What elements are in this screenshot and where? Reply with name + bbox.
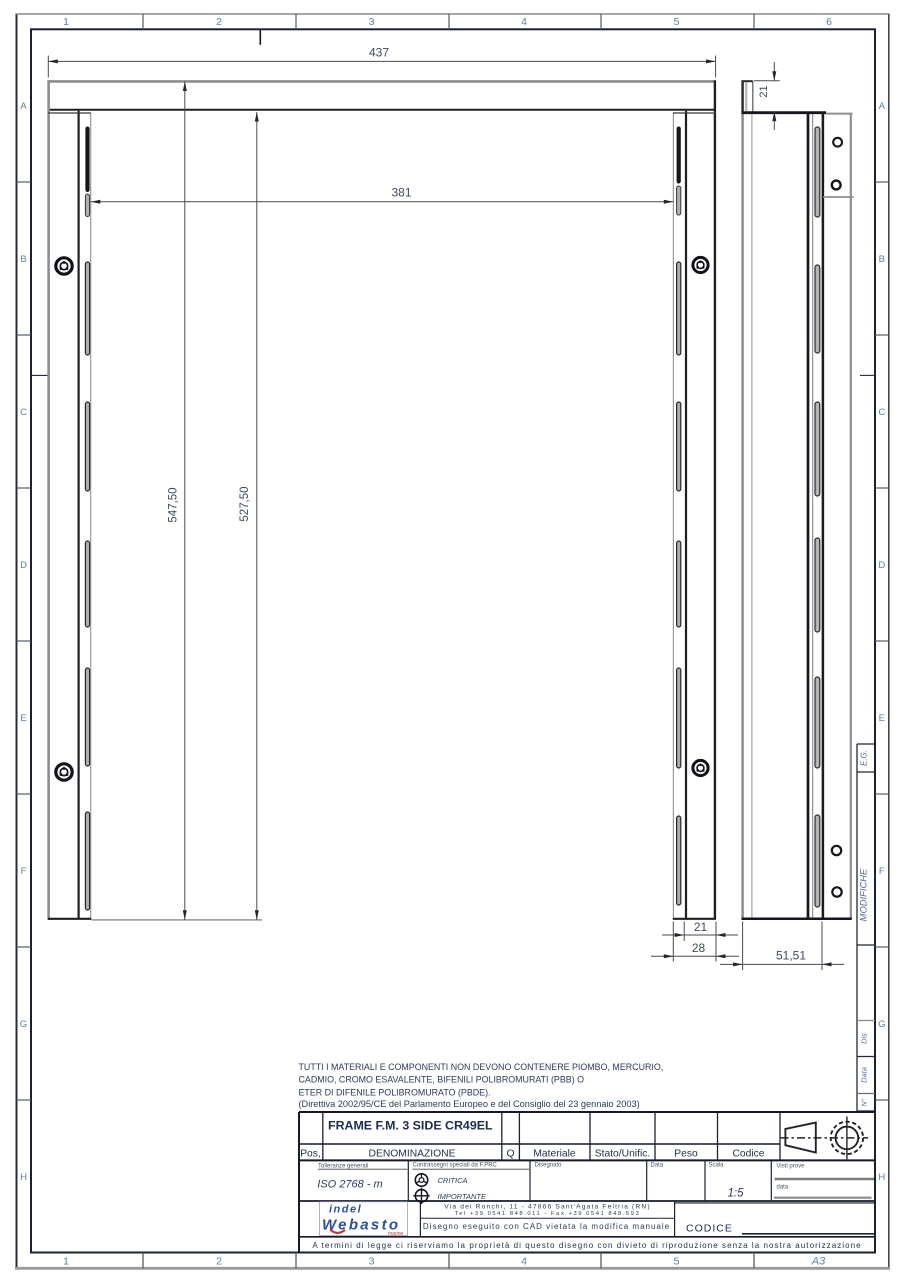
svg-text:indel: indel (329, 1204, 362, 1216)
svg-text:E: E (879, 713, 885, 724)
svg-text:4: 4 (521, 1256, 527, 1268)
svg-text:CODICE: CODICE (686, 1223, 733, 1235)
svg-text:5: 5 (674, 16, 680, 28)
svg-text:547,50: 547,50 (168, 487, 180, 522)
svg-text:F: F (879, 866, 885, 877)
svg-text:Disegno eseguito con CAD vieta: Disegno eseguito con CAD vietata la modi… (423, 1222, 670, 1231)
svg-text:E: E (20, 713, 26, 724)
svg-text:A3: A3 (811, 1256, 826, 1268)
svg-text:Peso: Peso (674, 1149, 698, 1160)
svg-text:CADMIO, CROMO ESAVALENTE, BIFE: CADMIO, CROMO ESAVALENTE, BIFENILI POLIB… (299, 1075, 585, 1085)
svg-text:ISO 2768 - m: ISO 2768 - m (317, 1179, 382, 1191)
svg-text:A: A (879, 101, 886, 112)
svg-text:Visti prove: Visti prove (777, 1164, 806, 1170)
svg-text:IMPORTANTE: IMPORTANTE (438, 1192, 487, 1201)
svg-text:marine: marine (388, 1231, 404, 1237)
svg-text:Data: Data (860, 1067, 869, 1083)
svg-text:N°: N° (861, 1098, 869, 1106)
svg-text:Stato/Unific.: Stato/Unific. (595, 1149, 651, 1160)
svg-text:B: B (879, 254, 885, 265)
svg-text:Dis: Dis (860, 1033, 869, 1044)
svg-text:2: 2 (216, 1256, 222, 1268)
svg-text:C: C (878, 407, 885, 418)
svg-text:381: 381 (391, 186, 411, 200)
svg-text:28: 28 (692, 941, 706, 955)
svg-text:Contrassegni speciali da F.PRC: Contrassegni speciali da F.PRC (413, 1163, 498, 1169)
svg-text:4: 4 (521, 16, 527, 28)
svg-text:ETER DI DIFENILE POLIBROMURATO: ETER DI DIFENILE POLIBROMURATO (PBDE). (299, 1088, 491, 1098)
svg-text:Q: Q (506, 1149, 514, 1160)
svg-text:A: A (20, 101, 27, 112)
svg-text:6: 6 (826, 16, 832, 28)
svg-text:CRITICA: CRITICA (438, 1176, 468, 1185)
svg-text:Disegnato: Disegnato (535, 1163, 563, 1169)
svg-text:21: 21 (694, 920, 708, 934)
svg-text:Pos,: Pos, (300, 1149, 321, 1160)
svg-text:3: 3 (369, 1256, 375, 1268)
svg-text:D: D (878, 560, 885, 571)
svg-text:H: H (20, 1172, 27, 1183)
svg-text:Data: Data (651, 1163, 664, 1169)
svg-text:Via dei Ronchi, 11 - 47866 S: Via dei Ronchi, 11 - 47866 Sant'Agata Fe… (444, 1204, 650, 1211)
svg-text:51,51: 51,51 (776, 949, 806, 963)
svg-text:Codice: Codice (732, 1149, 764, 1160)
svg-text:5: 5 (674, 1256, 680, 1268)
svg-text:21: 21 (758, 85, 770, 97)
svg-text:1: 1 (63, 1256, 69, 1268)
svg-text:B: B (20, 254, 26, 265)
svg-text:H: H (878, 1172, 885, 1183)
svg-text:FRAME F.M. 3 SIDE CR49EL: FRAME F.M. 3 SIDE CR49EL (328, 1119, 493, 1133)
svg-text:TUTTI I MATERIALI E COMPONENTI: TUTTI I MATERIALI E COMPONENTI NON DEVON… (299, 1062, 664, 1072)
svg-text:E.G.: E.G. (860, 750, 869, 766)
svg-text:1:5: 1:5 (728, 1188, 745, 1200)
svg-text:(Direttiva 2002/95/CE del Parl: (Direttiva 2002/95/CE del Parlamento Eur… (299, 1099, 640, 1109)
svg-text:2: 2 (216, 16, 222, 28)
svg-text:527,50: 527,50 (239, 486, 251, 521)
svg-text:data: data (777, 1185, 789, 1191)
svg-text:3: 3 (369, 16, 375, 28)
svg-text:A termini di legge ci riservia: A termini di legge ci riserviamo la prop… (312, 1241, 861, 1250)
svg-text:437: 437 (369, 46, 389, 60)
svg-text:D: D (20, 560, 27, 571)
svg-text:Scala: Scala (709, 1163, 725, 1169)
svg-text:Tel +39 0541 848.011 - Fax +39: Tel +39 0541 848.011 - Fax +39 0541 848.… (455, 1211, 640, 1217)
svg-text:C: C (20, 407, 27, 418)
svg-text:Materiale: Materiale (533, 1149, 576, 1160)
svg-text:G: G (20, 1019, 27, 1030)
svg-text:MODIFICHE: MODIFICHE (858, 868, 869, 921)
svg-text:DENOMINAZIONE: DENOMINAZIONE (369, 1149, 456, 1160)
svg-text:F: F (21, 866, 27, 877)
svg-text:1: 1 (63, 16, 69, 28)
svg-text:Tolleranze generali: Tolleranze generali (318, 1164, 368, 1170)
svg-text:G: G (878, 1019, 885, 1030)
